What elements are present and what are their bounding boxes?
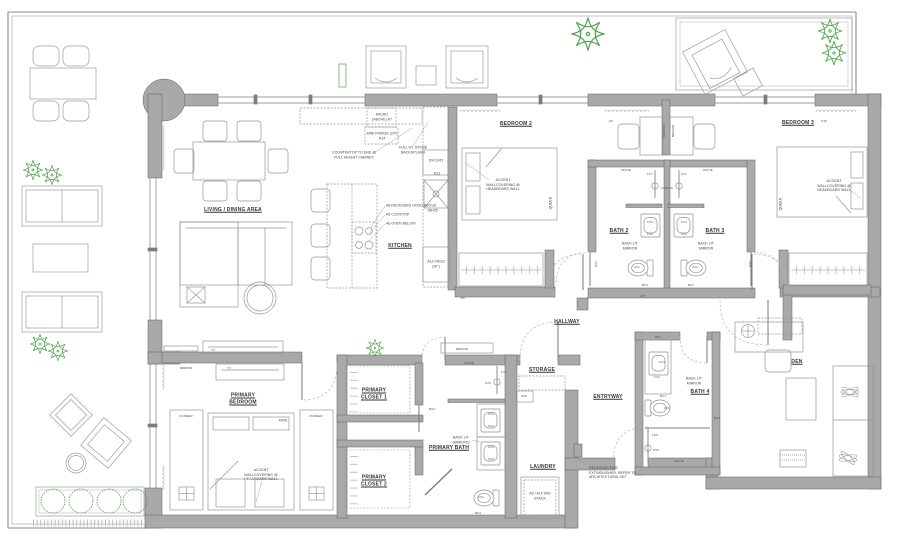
tag-tv-primary: TV bbox=[227, 366, 231, 370]
bath3-fixtures bbox=[674, 170, 706, 276]
primary-bath-fixtures bbox=[441, 343, 505, 506]
room-label-living: LIVING / DINING AREA bbox=[173, 207, 293, 214]
tag-niche-bath3: NICHE bbox=[703, 168, 713, 172]
room-label-entryway: ENTRYWAY bbox=[580, 394, 636, 401]
note-backsplash: FULL HT. STONE BACKSPLASH bbox=[394, 145, 432, 154]
room-label-primary-closet2: PRIMARY CLOSET 2 bbox=[355, 475, 393, 488]
bath4-fixtures bbox=[645, 340, 710, 460]
tag-ba1-primary: BA1 bbox=[475, 511, 481, 515]
note-oven: A6 OVEN BELOW bbox=[386, 222, 438, 227]
tag-fx6-bath4: FX6 bbox=[653, 448, 659, 452]
balcony-armchairs bbox=[339, 46, 488, 88]
outdoor-lounge-chairs bbox=[50, 394, 132, 473]
note-backlit-primary: BACK LIT MIRRORS bbox=[447, 435, 475, 444]
note-backlit-bath2: BACK LIT MIRROR bbox=[617, 241, 643, 250]
planter-box bbox=[33, 487, 147, 523]
note-backlit-bath3: BACK LIT MIRROR bbox=[693, 241, 719, 250]
tag-fx7-bath3: FX7 bbox=[681, 172, 687, 176]
room-label-storage: STORAGE bbox=[517, 367, 567, 374]
tag-fx2-bath4: FX2 bbox=[654, 375, 660, 379]
tag-fx1-bath3: FX1 bbox=[692, 265, 698, 269]
tag-ba2-closet1: BA2 bbox=[429, 407, 435, 411]
living-furniture bbox=[164, 121, 292, 380]
dining-set bbox=[174, 121, 288, 201]
room-label-primary-closet1: PRIMARY CLOSET 1 bbox=[355, 388, 393, 401]
tag-mirror-hall: MIRROR bbox=[456, 347, 469, 351]
tag-fx1-primary: FX1 bbox=[478, 495, 484, 499]
tag-niche-bath4: NICHE bbox=[674, 459, 684, 463]
primary-bedroom-furniture bbox=[170, 410, 333, 510]
note-fire-extinguisher: RECESSED FIRE EXTINGUISHER, REFER TO ARC… bbox=[589, 466, 645, 480]
note-accent-bedroom3: ACCENT WALLCOVERING @ HEADBOARD WALL bbox=[816, 179, 852, 193]
tag-runner-left: RUNNER bbox=[179, 414, 192, 418]
tag-fx6-bath2: FX6 bbox=[661, 186, 667, 190]
tag-d18: D18 bbox=[821, 119, 827, 123]
bath2-fixtures bbox=[628, 170, 660, 276]
tag-ba4-bath3: BA4 bbox=[748, 261, 752, 267]
tag-water-heater: W/H bbox=[521, 394, 527, 398]
tag-wh25: WH25 bbox=[422, 209, 444, 214]
note-countertop: COUNTERTOP TO END @ FULL HEIGHT CABINET bbox=[331, 150, 377, 159]
room-label-bedroom2: BEDROOM 2 bbox=[481, 121, 551, 128]
den-furniture bbox=[735, 318, 873, 476]
tag-tv-living: TV bbox=[211, 348, 215, 352]
tag-a13: A13 bbox=[427, 172, 447, 177]
tag-a87-bedroom2: A87 bbox=[460, 296, 466, 300]
closet-bedroom2 bbox=[459, 253, 543, 286]
tag-fx7-bath2: FX7 bbox=[647, 172, 653, 176]
tag-fx6-bath3: FX6 bbox=[667, 186, 673, 190]
tag-fridge: A12 FR/SZ (30") bbox=[427, 259, 445, 268]
tag-fx4-bath3: FX4 bbox=[681, 220, 687, 224]
room-label-primary-bath: PRIMARY BATH bbox=[416, 445, 482, 452]
primary-mirror bbox=[164, 346, 198, 351]
room-label-bath2: BATH 2 bbox=[599, 228, 639, 235]
note-micro: MICRO (ABOVE) A7 bbox=[370, 112, 394, 121]
coffee-table bbox=[244, 282, 276, 314]
tag-fx2-primary2: FX2 bbox=[488, 457, 494, 461]
room-label-hallway: HALLWAY bbox=[537, 319, 597, 326]
tag-ba2-bath4: BA2 bbox=[655, 335, 661, 339]
room-label-laundry: LAUNDRY bbox=[518, 464, 568, 471]
note-cooktop: A5 COOKTOP bbox=[386, 213, 438, 218]
tag-fx1-bath4: FX1 bbox=[664, 406, 670, 410]
tag-fx2-bath2: FX2 bbox=[647, 232, 653, 236]
tag-ba1-bath4: BA1 bbox=[660, 394, 666, 398]
tag-mirror-desk2: MIRROR bbox=[662, 125, 666, 138]
room-label-bath4: BATH 4 bbox=[680, 389, 720, 396]
outdoor-dining-set bbox=[30, 46, 96, 121]
tag-fx4-primary1: FX4 bbox=[488, 412, 494, 416]
note-backlit-bath4: BACK LIT MIRROR bbox=[681, 376, 707, 385]
outdoor-sofas bbox=[22, 186, 102, 332]
tag-king: KING bbox=[279, 419, 288, 424]
bedroom2-furniture bbox=[459, 117, 663, 286]
tag-fx4-primary2: FX4 bbox=[488, 445, 494, 449]
note-accent-bedroom2: ACCENT WALLCOVERING @ HEADBOARD WALL bbox=[485, 178, 521, 192]
room-label-den: DEN bbox=[782, 359, 812, 366]
den-daybed bbox=[833, 366, 873, 476]
tag-ba2-bath4-door: BA2 bbox=[714, 416, 720, 420]
fire-extinguisher-cabinet bbox=[574, 444, 582, 457]
tag-ba1-bath3: BA1 bbox=[688, 283, 694, 287]
note-hood: A8 RECESSED HOOD ABOVE bbox=[386, 204, 438, 209]
tag-ba1-bath2: BA1 bbox=[642, 283, 648, 287]
note-wd-stack: A9 / A10 W/D STACK bbox=[528, 491, 552, 500]
plants bbox=[19, 11, 851, 365]
tag-d6: D6 bbox=[609, 119, 613, 123]
tag-fx2-bath3: FX2 bbox=[681, 232, 687, 236]
tag-niche-bath2: NICHE bbox=[621, 168, 631, 172]
tag-fx6-primary: FX6 bbox=[485, 381, 491, 385]
floor-plan: LIVING / DINING AREA KITCHEN BEDROOM 2 B… bbox=[0, 0, 905, 537]
tag-queen-bedroom3: QUEEN bbox=[779, 198, 784, 211]
tag-fx7-primary: FX7 bbox=[501, 370, 507, 374]
den-rug bbox=[780, 450, 806, 467]
tag-fx4-bath2: FX4 bbox=[647, 220, 653, 224]
tag-fx1-bath2: FX1 bbox=[634, 265, 640, 269]
tag-mirror-primary: MIRROR bbox=[180, 366, 193, 370]
bed-king bbox=[208, 413, 294, 510]
tag-dishwasher: DW (24") bbox=[427, 159, 445, 164]
tag-ba4-bath2: BA4 bbox=[594, 261, 598, 267]
tag-fx4-bath4: FX4 bbox=[659, 360, 665, 364]
desk-bedroom3 bbox=[670, 117, 715, 155]
tag-a87-bath: A87 bbox=[640, 294, 646, 298]
den-table bbox=[786, 378, 816, 420]
room-label-bath3: BATH 3 bbox=[695, 228, 735, 235]
walls bbox=[143, 79, 881, 528]
tag-fx8-bath4: FX8 bbox=[652, 433, 658, 437]
tag-runner-right: RUNNER bbox=[309, 414, 322, 418]
tag-fx2-primary1: FX2 bbox=[488, 424, 494, 428]
note-mini-fridge: MINI FRIDGE (24") A14 bbox=[366, 131, 398, 140]
room-label-primary-bedroom: PRIMARY BEDROOM bbox=[220, 393, 266, 406]
room-label-kitchen: KITCHEN bbox=[370, 243, 430, 250]
floor-plan-drawing bbox=[0, 0, 905, 537]
tag-niche-primary-bath: NICHE bbox=[464, 361, 474, 365]
note-accent-primary: ACCENT WALLCOVERING @ HEADBOARD WALL bbox=[243, 468, 279, 482]
tag-queen-bedroom2: QUEEN bbox=[549, 197, 554, 210]
desk-bedroom2 bbox=[618, 117, 663, 155]
tag-mirror-desk3: MIRROR bbox=[671, 125, 675, 138]
closet-bedroom3 bbox=[789, 253, 867, 286]
